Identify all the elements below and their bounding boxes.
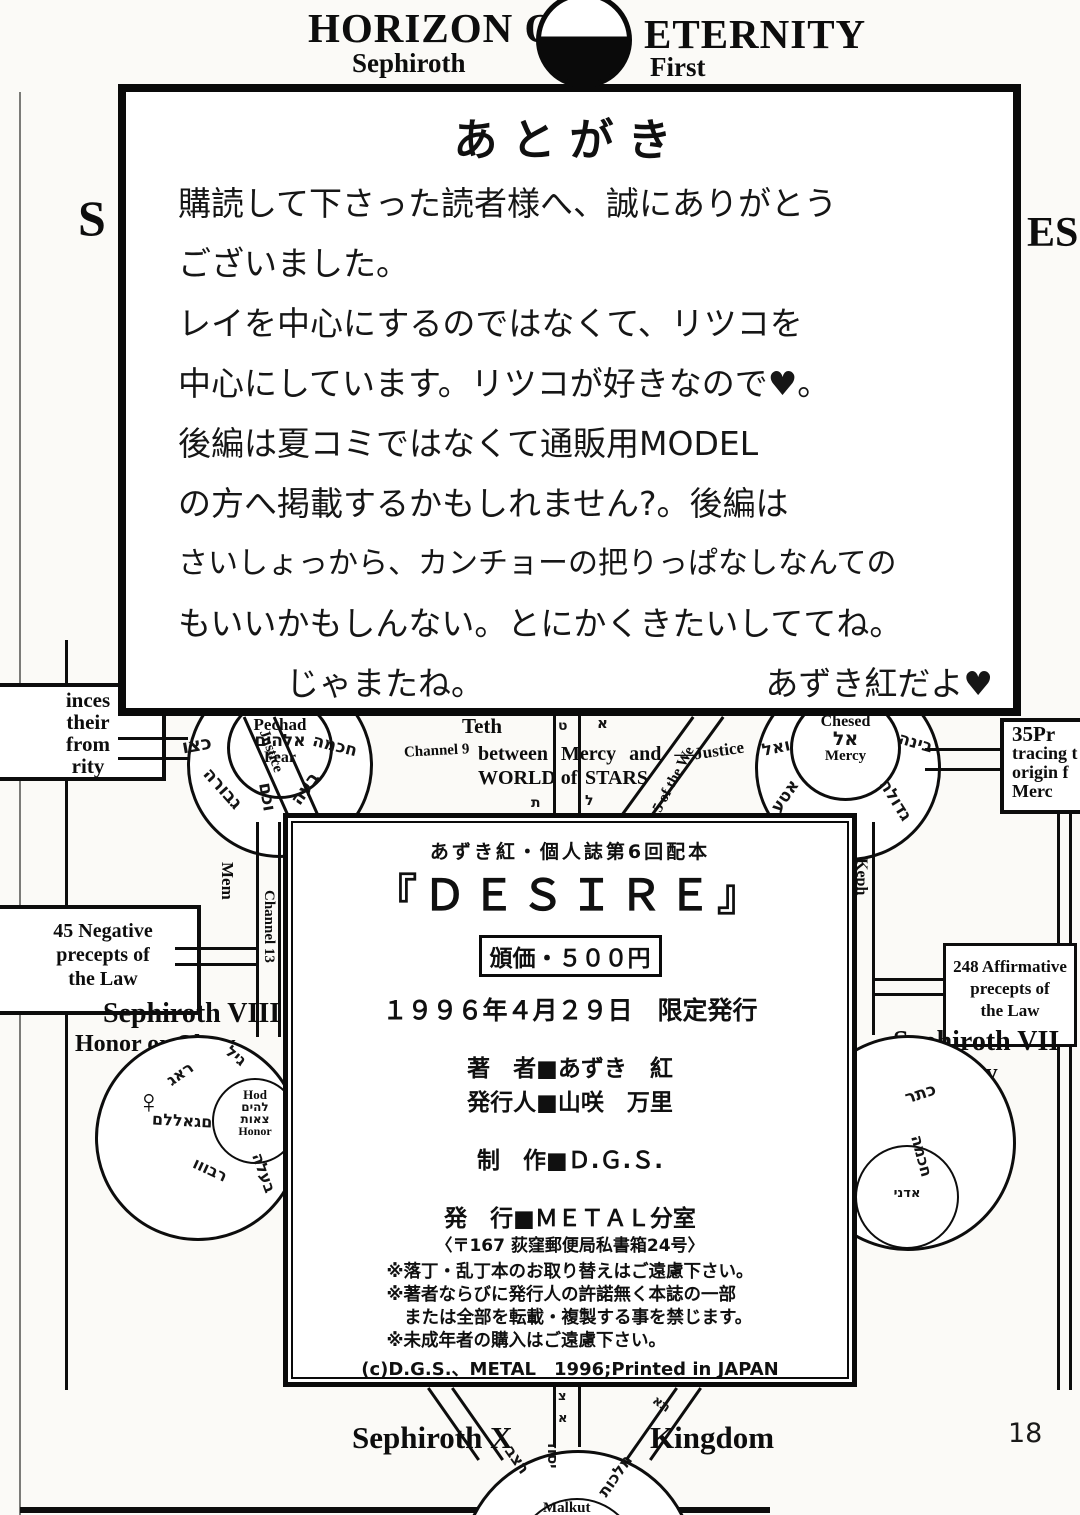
copyright-line: (c)D.G.S.、METAL 1996;Printed in JAPAN bbox=[293, 1355, 847, 1381]
box-line: 45 Negative bbox=[9, 919, 197, 943]
po-box-address: 〈〒167 荻窪郵便局私書箱24号〉 bbox=[293, 1231, 847, 1256]
afterword-title: あとがき bbox=[126, 104, 1013, 168]
note-line: ※著者ならびに発行人の許諾無く本誌の一部 bbox=[386, 1284, 753, 1307]
credit-author: 著 者■あずき 紅 bbox=[293, 1049, 847, 1083]
tree-right-pillar-line-2 bbox=[1069, 805, 1072, 1390]
half-moon-circle-icon bbox=[536, 0, 632, 88]
channel-line bbox=[874, 993, 943, 996]
afterword-line: ございました。 bbox=[178, 234, 965, 294]
kingdom-label: Kingdom bbox=[650, 1422, 774, 1453]
afterword-line: 購読して下さった読者様へ、誠にありがとう bbox=[178, 174, 965, 234]
note-line: ※落丁・乱丁本のお取り替えはご遠慮下さい。 bbox=[386, 1261, 753, 1284]
box-line: 248 Affirmative bbox=[946, 956, 1074, 978]
right-precepts-fragment-box: 35Pr tracing t origin f Merc bbox=[1000, 718, 1080, 814]
credit-issuer: 発 行■ＭＥＴＡＬ分室 bbox=[293, 1199, 847, 1233]
hebrew-ring-text: םגאללם bbox=[152, 1111, 213, 1130]
channel9-label: Channel 9 bbox=[404, 742, 470, 760]
tree-right-pillar-line-1 bbox=[1057, 805, 1060, 1390]
box-line: the Law bbox=[946, 1000, 1074, 1022]
colophon-inner-border: あずき紅・個人誌第6回配本 『ＤＥＳＩＲＥ』 頒価・５００円 １９９６年４月２９… bbox=[291, 821, 849, 1379]
credit-publisher: 発行人■山咲 万里 bbox=[293, 1083, 847, 1117]
fragment-line: tracing t bbox=[1012, 744, 1080, 763]
credit-production: 制 作■Ｄ.Ｇ.Ｓ. bbox=[293, 1141, 847, 1175]
channel13-label: Channel 13 bbox=[261, 890, 276, 963]
book-title: 『ＤＥＳＩＲＥ』 bbox=[293, 861, 847, 923]
notes-block: ※落丁・乱丁本のお取り替えはご遠慮下さい。 ※著者ならびに発行人の許諾無く本誌の… bbox=[293, 1261, 847, 1353]
tet-glyph: ט bbox=[558, 719, 568, 733]
box-line: precepts of bbox=[946, 978, 1074, 1000]
afterword-line: 後編は夏コミではなくて通販用MODEL bbox=[178, 414, 965, 474]
clipped-letter-left: S bbox=[78, 193, 106, 243]
afterword-line: の方へ掲載するかもしれません?。後編は bbox=[178, 474, 965, 534]
teth-label: Teth bbox=[462, 716, 502, 737]
fragment-line: Merc bbox=[1012, 782, 1080, 801]
channel-line bbox=[118, 737, 188, 740]
note-line: または全部を転載・複製する事を禁じます。 bbox=[386, 1307, 753, 1330]
afterword-line: 中心にしています。リツコが好きなので♥。 bbox=[178, 354, 965, 414]
channel-line bbox=[118, 757, 188, 760]
channel-glyph: צ bbox=[558, 1390, 567, 1403]
channel-vertical bbox=[872, 822, 875, 1035]
price-badge: 頒価・５００円 bbox=[479, 935, 662, 977]
box-line: the Law bbox=[9, 967, 197, 991]
page-number: 18 bbox=[1008, 1418, 1042, 1449]
clipped-letters-right: ES bbox=[1027, 212, 1078, 254]
channel-vertical bbox=[553, 1387, 556, 1447]
channel-vertical bbox=[578, 716, 581, 815]
box-line: precepts of bbox=[9, 943, 197, 967]
channel-glyph: א bbox=[558, 1412, 567, 1425]
channel-line bbox=[175, 947, 256, 950]
colophon-box: あずき紅・個人誌第6回配本 『ＤＥＳＩＲＥ』 頒価・５００円 １９９６年４月２９… bbox=[283, 813, 857, 1387]
afterword-line: レイを中心にするのではなくて、リツコを bbox=[178, 294, 965, 354]
tav-glyph: ת bbox=[531, 796, 541, 810]
channel-line bbox=[925, 768, 1003, 771]
afterword-box: あとがき 購読して下さった読者様へ、誠にありがとう ございました。 レイを中心に… bbox=[118, 84, 1021, 716]
header-title-right: ETERNITY bbox=[644, 14, 866, 55]
hebrew-ring-text: כצו bbox=[181, 734, 214, 758]
sphere-meaning: Mercy bbox=[793, 749, 898, 764]
page-edge-line bbox=[19, 92, 21, 1515]
fragment-line: origin f bbox=[1012, 763, 1080, 782]
channel-vertical bbox=[578, 1387, 581, 1447]
scanned-page: HORIZON OF Sephiroth ETERNITY First S ES… bbox=[0, 0, 1080, 1515]
afterword-line: もいいかもしんない。とにかくきたいしててね。 bbox=[178, 594, 965, 654]
series-label: あずき紅・個人誌第6回配本 bbox=[293, 837, 847, 864]
world-label: WORLD of bbox=[478, 768, 577, 788]
publication-date: １９９６年４月２９日 限定発行 bbox=[293, 991, 847, 1027]
fragment-line: 35Pr bbox=[1012, 725, 1080, 744]
stars-label: STARS bbox=[585, 768, 648, 788]
mem-label: Mem bbox=[219, 862, 236, 900]
sephiroth-viii-label: Sephiroth VIII bbox=[103, 1000, 280, 1028]
afterword-signoff: じゃまたね。 bbox=[286, 654, 484, 714]
afterword-signature: あずき紅だよ♥ bbox=[765, 654, 993, 714]
channel-vertical bbox=[553, 716, 556, 815]
netzach-inner-circle: אדני bbox=[855, 1145, 959, 1249]
afterword-line: さいしょっから、カンチョーの把りっぱなしなんての bbox=[178, 534, 965, 594]
channel-line bbox=[925, 748, 1003, 751]
sphere-hebrew: אל bbox=[793, 730, 898, 749]
justice-right-label: Justice bbox=[693, 739, 745, 763]
header-subtitle-left: Sephiroth bbox=[352, 50, 466, 77]
aleph-glyph: א bbox=[597, 716, 608, 731]
price-row: 頒価・５００円 bbox=[293, 935, 847, 977]
channel-line bbox=[175, 963, 256, 966]
sphere-hebrew: אדני bbox=[857, 1187, 957, 1200]
lamed-glyph: ל bbox=[585, 794, 593, 808]
malkut-label: Malkut bbox=[543, 1501, 591, 1515]
channel-line bbox=[874, 978, 943, 981]
note-line: ※未成年者の購入はご遠慮下さい。 bbox=[386, 1330, 753, 1353]
header-subtitle-right: First bbox=[650, 54, 705, 81]
